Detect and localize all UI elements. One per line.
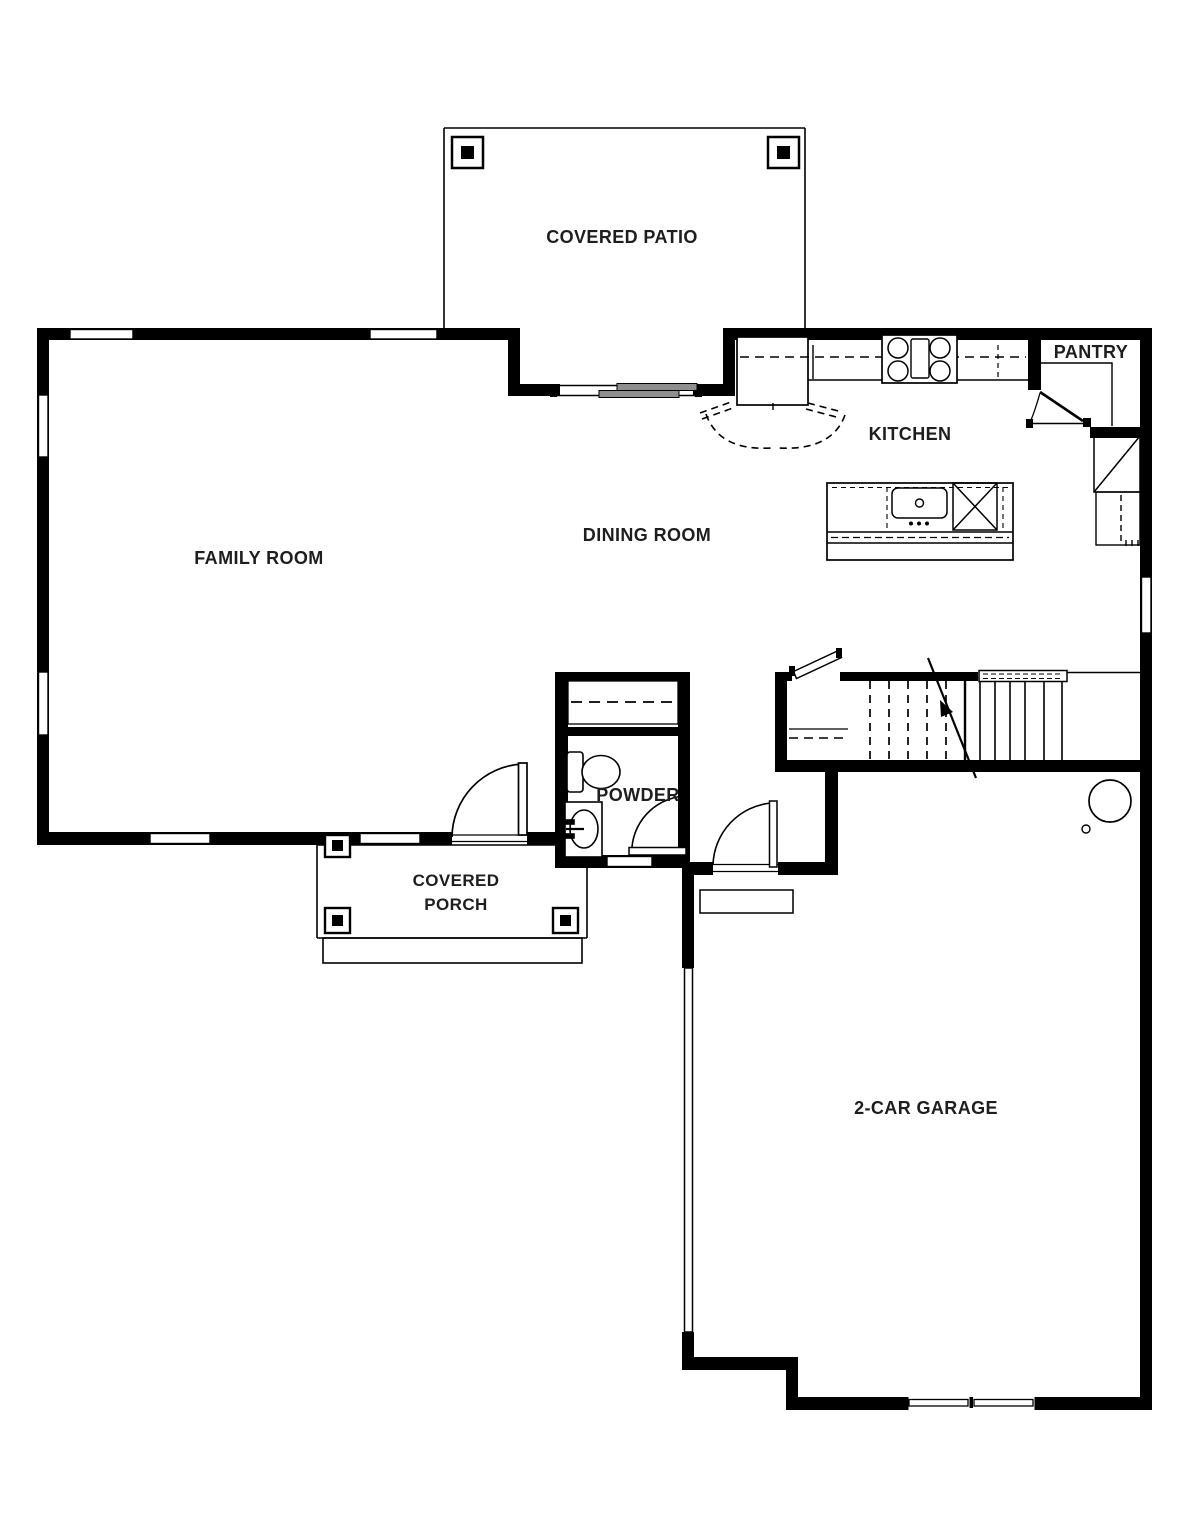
label-garage: 2-CAR GARAGE	[854, 1098, 998, 1118]
window-west-2	[39, 672, 49, 735]
label-dining-room: DINING ROOM	[583, 525, 711, 545]
label-covered-patio: COVERED PATIO	[546, 227, 698, 247]
patio-post-right	[768, 137, 799, 168]
patio-post-left	[452, 137, 483, 168]
sliding-patio-door	[550, 384, 702, 398]
stove	[882, 335, 957, 383]
front-door	[452, 763, 527, 842]
porch-post-top-left	[325, 835, 350, 857]
pantry-door	[1026, 392, 1091, 428]
base-cabinet	[1096, 492, 1140, 546]
label-family-room: FAMILY ROOM	[194, 548, 323, 568]
label-powder: POWDER	[596, 785, 679, 805]
window-powder	[607, 857, 652, 867]
garage-step	[700, 890, 793, 913]
garage-entry-door	[713, 801, 778, 872]
porch-post-bottom-right	[553, 908, 578, 933]
label-kitchen: KITCHEN	[869, 424, 952, 444]
window-north-2	[370, 330, 437, 340]
floor-plan: COVERED PATIO PANTRY KITCHEN DINING ROOM…	[0, 0, 1187, 1536]
window-south-2	[360, 834, 420, 844]
window-west-1	[39, 395, 49, 457]
window-south-1	[150, 834, 210, 844]
water-heater	[1082, 780, 1131, 833]
powder-sink	[565, 802, 602, 857]
garage-door	[905, 1397, 1038, 1410]
porch-post-bottom-left	[325, 908, 350, 933]
window-north-1	[70, 330, 133, 340]
stair-railing	[979, 671, 1140, 682]
garage-west-wall-lower	[685, 968, 693, 1332]
window-east-1	[1142, 577, 1152, 633]
understair-closet	[789, 648, 848, 738]
label-pantry: PANTRY	[1054, 342, 1128, 362]
powder-closet	[568, 681, 678, 724]
corner-cabinet	[1094, 435, 1140, 492]
label-covered-porch-2: PORCH	[424, 895, 487, 914]
refrigerator	[737, 337, 808, 410]
staircase	[870, 680, 1062, 760]
kitchen-island	[827, 483, 1013, 560]
label-covered-porch-1: COVERED	[413, 871, 500, 890]
